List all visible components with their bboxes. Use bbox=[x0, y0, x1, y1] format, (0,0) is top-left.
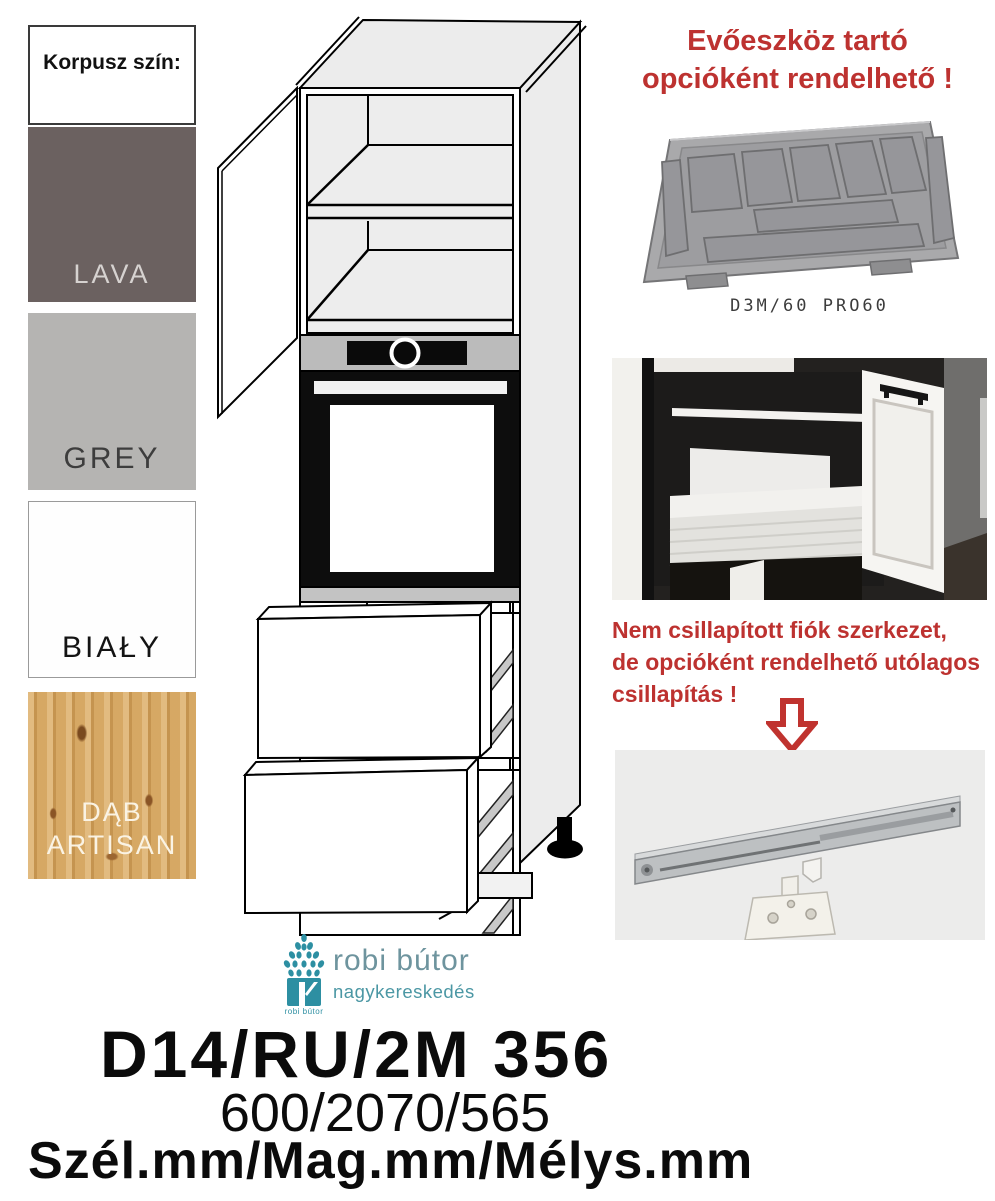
tray-product-code: D3M/60 PRO60 bbox=[642, 296, 977, 316]
product-sheet: Korpusz szín: LAVA GREY BIAŁY DĄB ARTISA… bbox=[0, 0, 995, 1201]
logo-tree-icon bbox=[283, 934, 325, 1006]
swatch-dab-artisan-label: DĄB ARTISAN bbox=[37, 796, 187, 861]
product-code: D14/RU/2M 356 bbox=[100, 1016, 612, 1092]
swatch-lava: LAVA bbox=[28, 127, 196, 302]
korpusz-header: Korpusz szín: bbox=[28, 25, 196, 125]
logo-wordmark: robi bútor nagykereskedés bbox=[333, 944, 475, 1003]
korpusz-title: Korpusz szín: bbox=[43, 51, 181, 123]
cutlery-note: Evőeszköz tartó opcióként rendelhető ! bbox=[605, 22, 990, 98]
drawer-slide-photo bbox=[615, 750, 985, 940]
cutlery-tray-photo bbox=[642, 110, 977, 295]
logo-name: robi bútor bbox=[333, 944, 475, 978]
swatch-bialy-label: BIAŁY bbox=[37, 631, 187, 665]
drawer-photo bbox=[612, 358, 987, 600]
damping-note: Nem csillapított fiók szerkezet, de opci… bbox=[612, 614, 995, 710]
swatch-dab-artisan: DĄB ARTISAN bbox=[28, 692, 196, 879]
swatch-grey: GREY bbox=[28, 313, 196, 490]
damping-note-line2: de opcióként rendelhető utólagos bbox=[612, 646, 995, 678]
product-dimensions-caption: Szél.mm/Mag.mm/Mélys.mm bbox=[28, 1131, 753, 1191]
cabinet-line-drawing bbox=[195, 5, 650, 945]
swatch-bialy: BIAŁY bbox=[28, 501, 196, 678]
logo-icon-caption: robi bútor bbox=[281, 1007, 327, 1016]
swatch-grey-label: GREY bbox=[37, 442, 187, 476]
cutlery-note-line2: opcióként rendelhető ! bbox=[605, 60, 990, 98]
down-arrow-icon bbox=[766, 698, 818, 754]
swatch-lava-label: LAVA bbox=[37, 259, 187, 290]
cutlery-note-line1: Evőeszköz tartó bbox=[605, 22, 990, 60]
logo-subtitle: nagykereskedés bbox=[333, 981, 475, 1003]
damping-note-line1: Nem csillapított fiók szerkezet, bbox=[612, 614, 995, 646]
